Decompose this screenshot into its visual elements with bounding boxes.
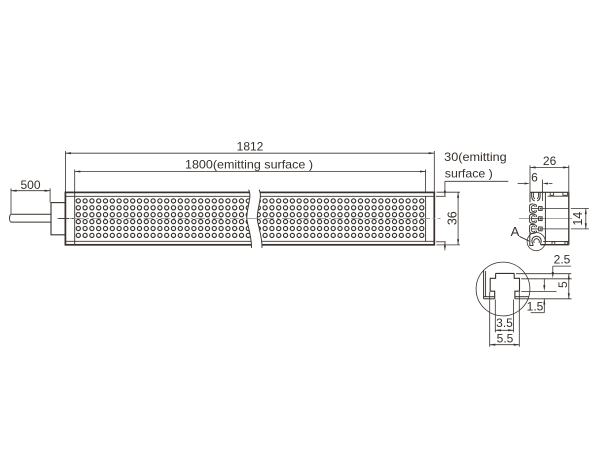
svg-text:5: 5: [556, 281, 570, 288]
svg-text:3.5: 3.5: [496, 316, 513, 330]
svg-text:5.5: 5.5: [497, 331, 514, 345]
svg-text:1800(emitting surface ): 1800(emitting surface ): [185, 158, 313, 172]
svg-text:1.5: 1.5: [527, 299, 544, 313]
svg-text:500: 500: [20, 178, 40, 192]
svg-text:26: 26: [543, 154, 557, 168]
svg-text:surface ): surface ): [445, 167, 493, 181]
svg-text:A: A: [511, 224, 520, 239]
svg-text:6: 6: [531, 171, 538, 185]
svg-text:14: 14: [571, 212, 585, 226]
svg-text:2.5: 2.5: [554, 253, 571, 267]
svg-text:36: 36: [445, 211, 459, 225]
svg-text:30(emitting: 30(emitting: [444, 150, 507, 164]
svg-text:1812: 1812: [237, 140, 264, 154]
